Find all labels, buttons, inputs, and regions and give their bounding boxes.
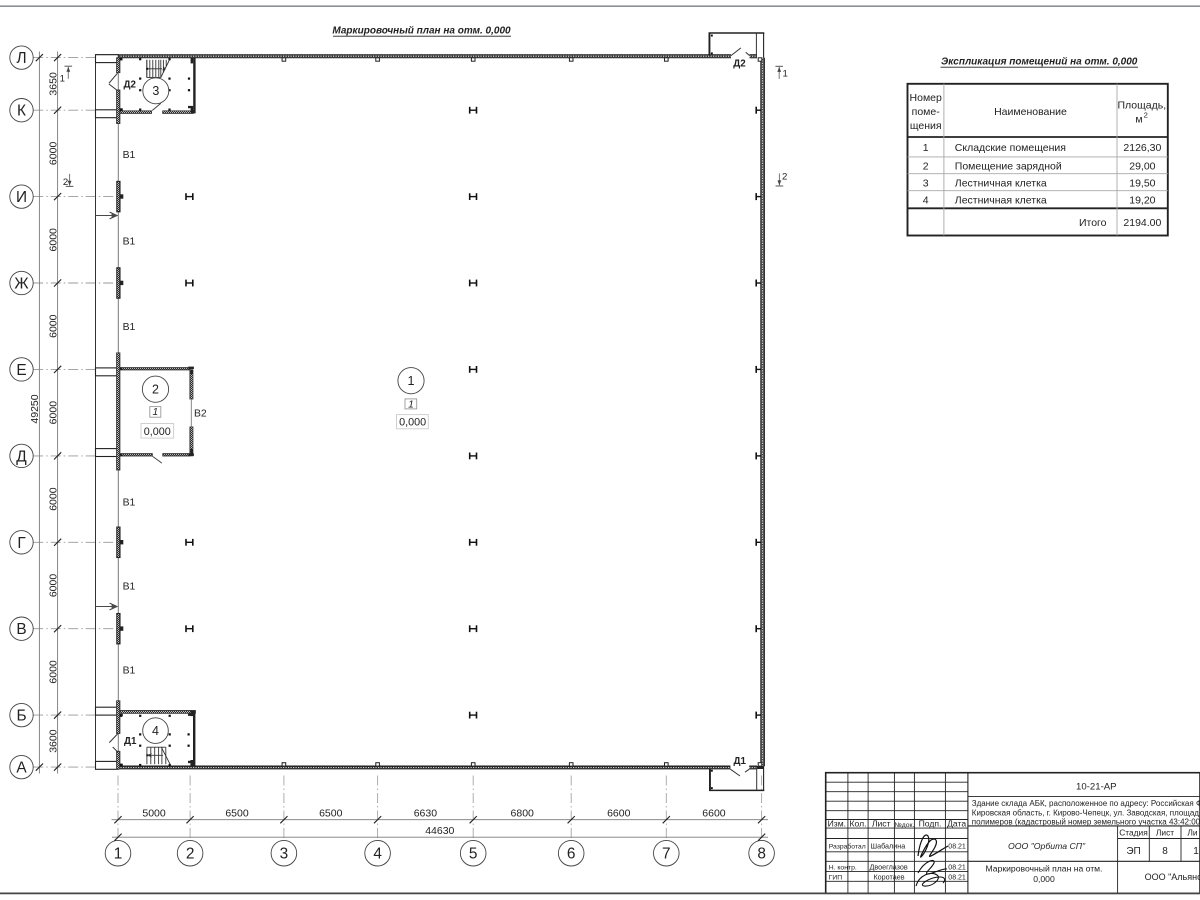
svg-text:4: 4 [152,724,159,738]
svg-text:6500: 6500 [225,808,249,820]
svg-text:В1: В1 [123,150,136,161]
svg-text:3: 3 [923,177,929,189]
svg-text:Наименование: Наименование [994,106,1067,118]
svg-text:Д: Д [16,448,27,465]
svg-text:В2: В2 [194,409,207,420]
svg-text:Кол.: Кол. [850,819,867,829]
svg-text:6000: 6000 [47,574,59,598]
svg-text:5: 5 [469,846,478,863]
svg-text:1: 1 [60,73,65,84]
svg-text:08.21: 08.21 [948,864,966,871]
svg-text:Изм.: Изм. [828,819,846,829]
svg-text:Стадия: Стадия [1119,827,1148,837]
svg-text:И: И [16,189,27,206]
svg-text:Дата: Дата [947,819,966,829]
svg-text:2: 2 [923,160,929,172]
svg-text:19,50: 19,50 [1129,177,1155,189]
svg-text:6800: 6800 [511,808,535,820]
svg-text:Экспликация помещений на отм.: Экспликация помещений на отм. 0,000 [941,57,1138,68]
svg-text:Помещение зарядной: Помещение зарядной [955,160,1062,172]
svg-text:В1: В1 [123,498,136,509]
svg-text:6630: 6630 [414,808,438,820]
svg-text:Подп.: Подп. [919,819,942,829]
svg-text:Маркировочный план на отм. 0,0: Маркировочный план на отм. 0,000 [332,26,511,37]
svg-text:Лист: Лист [872,819,891,829]
svg-text:1: 1 [114,846,123,863]
svg-text:08.21: 08.21 [948,875,966,882]
svg-text:В1: В1 [123,322,136,333]
svg-text:1: 1 [408,374,415,388]
svg-text:Итого: Итого [1079,217,1107,229]
svg-text:№док.: №док. [894,822,914,829]
svg-text:Здание склада АБК, расположенн: Здание склада АБК, расположенное по адре… [972,799,1200,808]
svg-text:4: 4 [923,194,929,206]
svg-text:2: 2 [63,177,68,188]
svg-text:Номер: Номер [910,92,942,104]
svg-text:6000: 6000 [47,314,59,338]
svg-text:6000: 6000 [47,487,59,511]
svg-text:2: 2 [1144,110,1148,119]
svg-text:Д1: Д1 [124,736,137,747]
svg-text:6000: 6000 [47,142,59,166]
svg-text:6600: 6600 [607,808,631,820]
svg-text:Двоеглазов: Двоеглазов [870,862,908,871]
svg-text:В1: В1 [123,582,136,593]
svg-text:Разработал: Разработал [829,843,866,851]
svg-text:Площадь,: Площадь, [1117,100,1166,112]
svg-text:Г: Г [17,535,26,552]
svg-text:3650: 3650 [47,72,59,96]
svg-text:ООО "Орбита СП": ООО "Орбита СП" [1008,841,1086,851]
svg-text:44630: 44630 [425,825,454,837]
svg-text:ЭП: ЭП [1126,846,1140,857]
svg-text:49250: 49250 [29,394,41,423]
svg-text:2: 2 [152,383,159,397]
svg-text:полимеров (кадастровый номер з: полимеров (кадастровый номер земельного … [972,817,1200,826]
svg-text:Л: Л [16,50,26,67]
svg-text:Кировская область, г. Кирово-Ч: Кировская область, г. Кирово-Чепецк, ул.… [972,808,1200,817]
svg-text:3: 3 [280,846,289,863]
svg-text:1: 1 [1193,846,1199,857]
svg-text:6: 6 [567,846,576,863]
svg-text:08.21: 08.21 [948,843,966,850]
svg-text:Б: Б [16,708,26,725]
svg-text:2: 2 [186,846,195,863]
svg-text:К: К [17,103,26,120]
svg-text:6000: 6000 [47,228,59,252]
svg-text:Лестничная клетка: Лестничная клетка [955,194,1047,206]
svg-text:м: м [1135,113,1142,125]
svg-text:1: 1 [923,142,929,154]
svg-text:В1: В1 [123,237,136,248]
svg-text:В1: В1 [123,666,136,677]
svg-text:6000: 6000 [47,401,59,425]
svg-text:В: В [16,621,26,638]
svg-text:7: 7 [662,846,671,863]
svg-text:Лестничная клетка: Лестничная клетка [955,177,1047,189]
svg-text:29,00: 29,00 [1129,160,1155,172]
svg-text:5000: 5000 [142,808,166,820]
svg-text:Е: Е [16,362,26,379]
svg-text:поме-: поме- [912,106,941,118]
svg-text:Лист: Лист [1156,827,1174,837]
svg-text:6600: 6600 [702,808,726,820]
svg-text:щения: щения [910,120,942,132]
svg-text:Ж: Ж [14,275,28,292]
svg-text:Коротаев: Коротаев [874,873,905,882]
svg-text:19,20: 19,20 [1129,194,1155,206]
svg-text:4: 4 [373,846,382,863]
svg-text:ООО "Альянс: ООО "Альянс [1145,872,1200,882]
svg-text:3600: 3600 [47,729,59,753]
svg-text:Д2: Д2 [124,79,137,90]
svg-text:Шабалина: Шабалина [871,842,906,851]
svg-text:8: 8 [1162,846,1168,857]
svg-text:Маркировочный план на отм.: Маркировочный план на отм. [986,864,1103,874]
svg-text:1: 1 [152,407,158,418]
svg-text:3: 3 [152,84,159,98]
svg-text:ГИП: ГИП [829,875,843,882]
svg-text:2126,30: 2126,30 [1123,142,1161,154]
svg-text:10-21-АР: 10-21-АР [1076,781,1117,792]
svg-text:2194.00: 2194.00 [1123,217,1161,229]
svg-text:0,000: 0,000 [1033,874,1055,884]
svg-text:2: 2 [782,171,787,182]
svg-text:Ли: Ли [1187,827,1197,837]
svg-text:Д2: Д2 [733,59,746,70]
svg-text:0,000: 0,000 [399,417,426,429]
svg-text:А: А [16,760,27,777]
svg-text:8: 8 [757,846,766,863]
svg-text:Д1: Д1 [734,756,747,767]
svg-text:6500: 6500 [319,808,343,820]
svg-text:1: 1 [783,69,788,80]
svg-text:0,000: 0,000 [144,426,171,438]
svg-text:1: 1 [408,399,414,410]
svg-text:Н. контр.: Н. контр. [829,864,857,871]
svg-text:6000: 6000 [47,660,59,684]
svg-text:Складские помещения: Складские помещения [955,142,1066,154]
